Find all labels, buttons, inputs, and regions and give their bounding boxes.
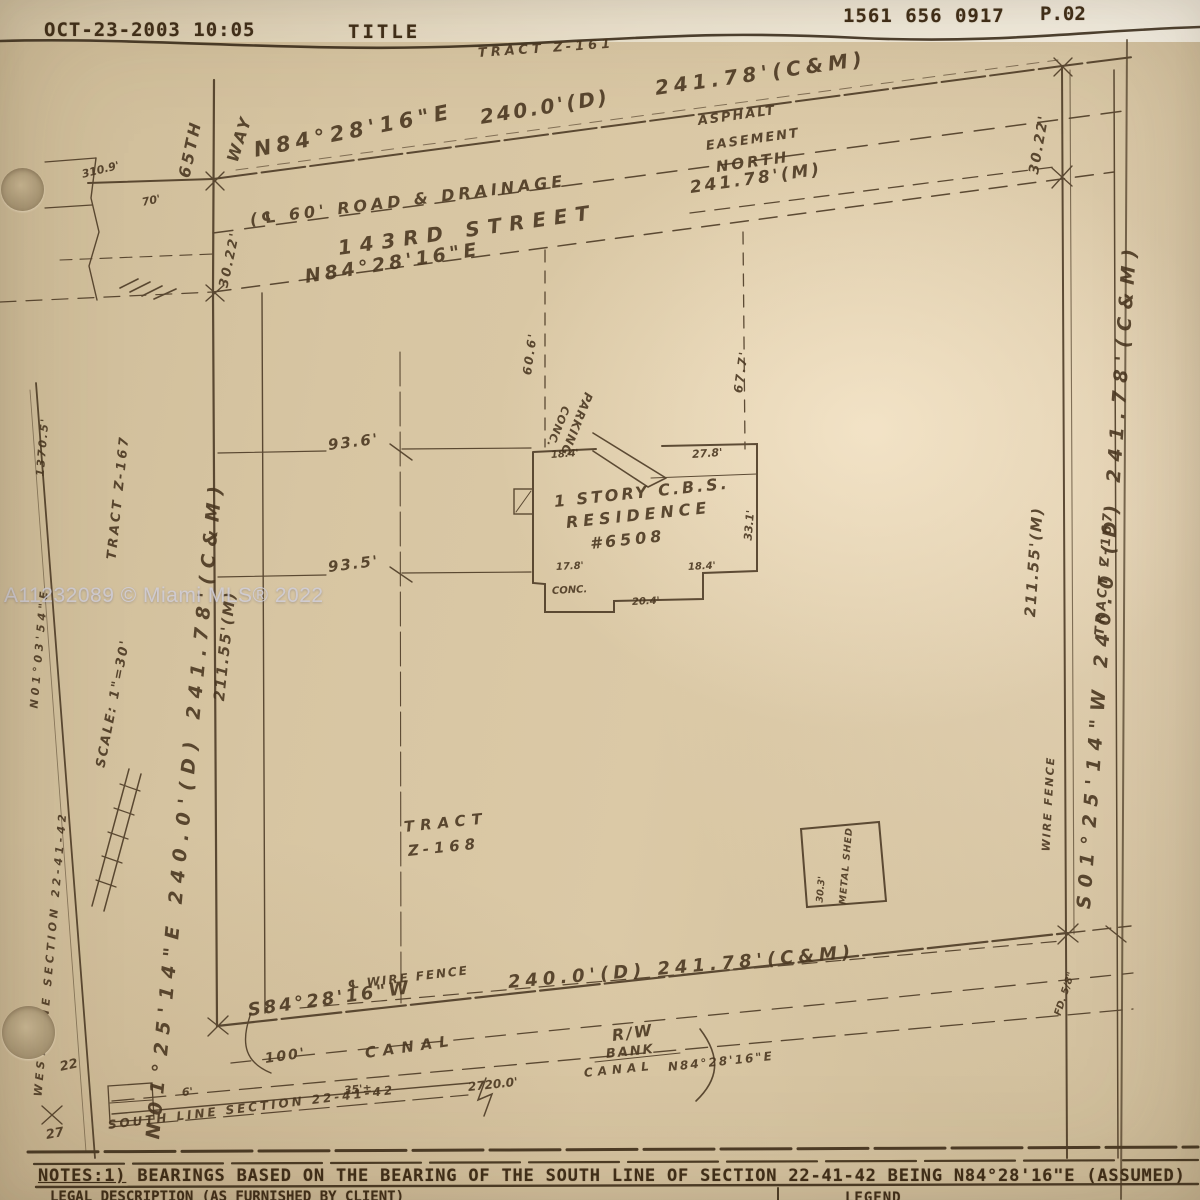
label-patio-conc: CONC.: [552, 584, 588, 597]
fax-doc-title: TITLE: [348, 21, 420, 43]
fax-page-number: P.02: [1040, 3, 1086, 25]
fax-number: 1561 656 0917: [843, 5, 1005, 27]
legend-header: LEGEND: [845, 1190, 902, 1200]
dimension-shed: 30.3': [815, 876, 828, 903]
scanned-survey-page: OCT-23-2003 10:05 TITLE 1561 656 0917 P.…: [0, 0, 1200, 1200]
dimension-6: 6': [181, 1085, 193, 1099]
fax-datetime: OCT-23-2003 10:05: [44, 19, 255, 41]
hole-punch-bottom: [2, 1006, 55, 1059]
notes-line: NOTES:1) BEARINGS BASED ON THE BEARING O…: [38, 1166, 1186, 1186]
dimension-18-4-bottom: 18.4': [688, 561, 716, 573]
dimension-18-4-top: 18.4': [551, 448, 579, 461]
dimension-27-8: 27.8': [692, 446, 723, 461]
legal-description-header: LEGAL DESCRIPTION (AS FURNISHED BY CLIEN…: [50, 1189, 404, 1200]
hole-punch-top: [1, 168, 44, 211]
label-corner-27: 27: [45, 1125, 65, 1143]
mls-watermark: A11232089 © Miami MLS® 2022: [4, 584, 324, 608]
notes-label: NOTES:1): [38, 1166, 126, 1186]
dimension-33-1: 33.1': [742, 510, 758, 542]
dimension-20-4: 20.4': [632, 596, 660, 608]
dimension-17-8: 17.8': [556, 561, 584, 573]
notes-text: BEARINGS BASED ON THE BEARING OF THE SOU…: [126, 1166, 1185, 1186]
